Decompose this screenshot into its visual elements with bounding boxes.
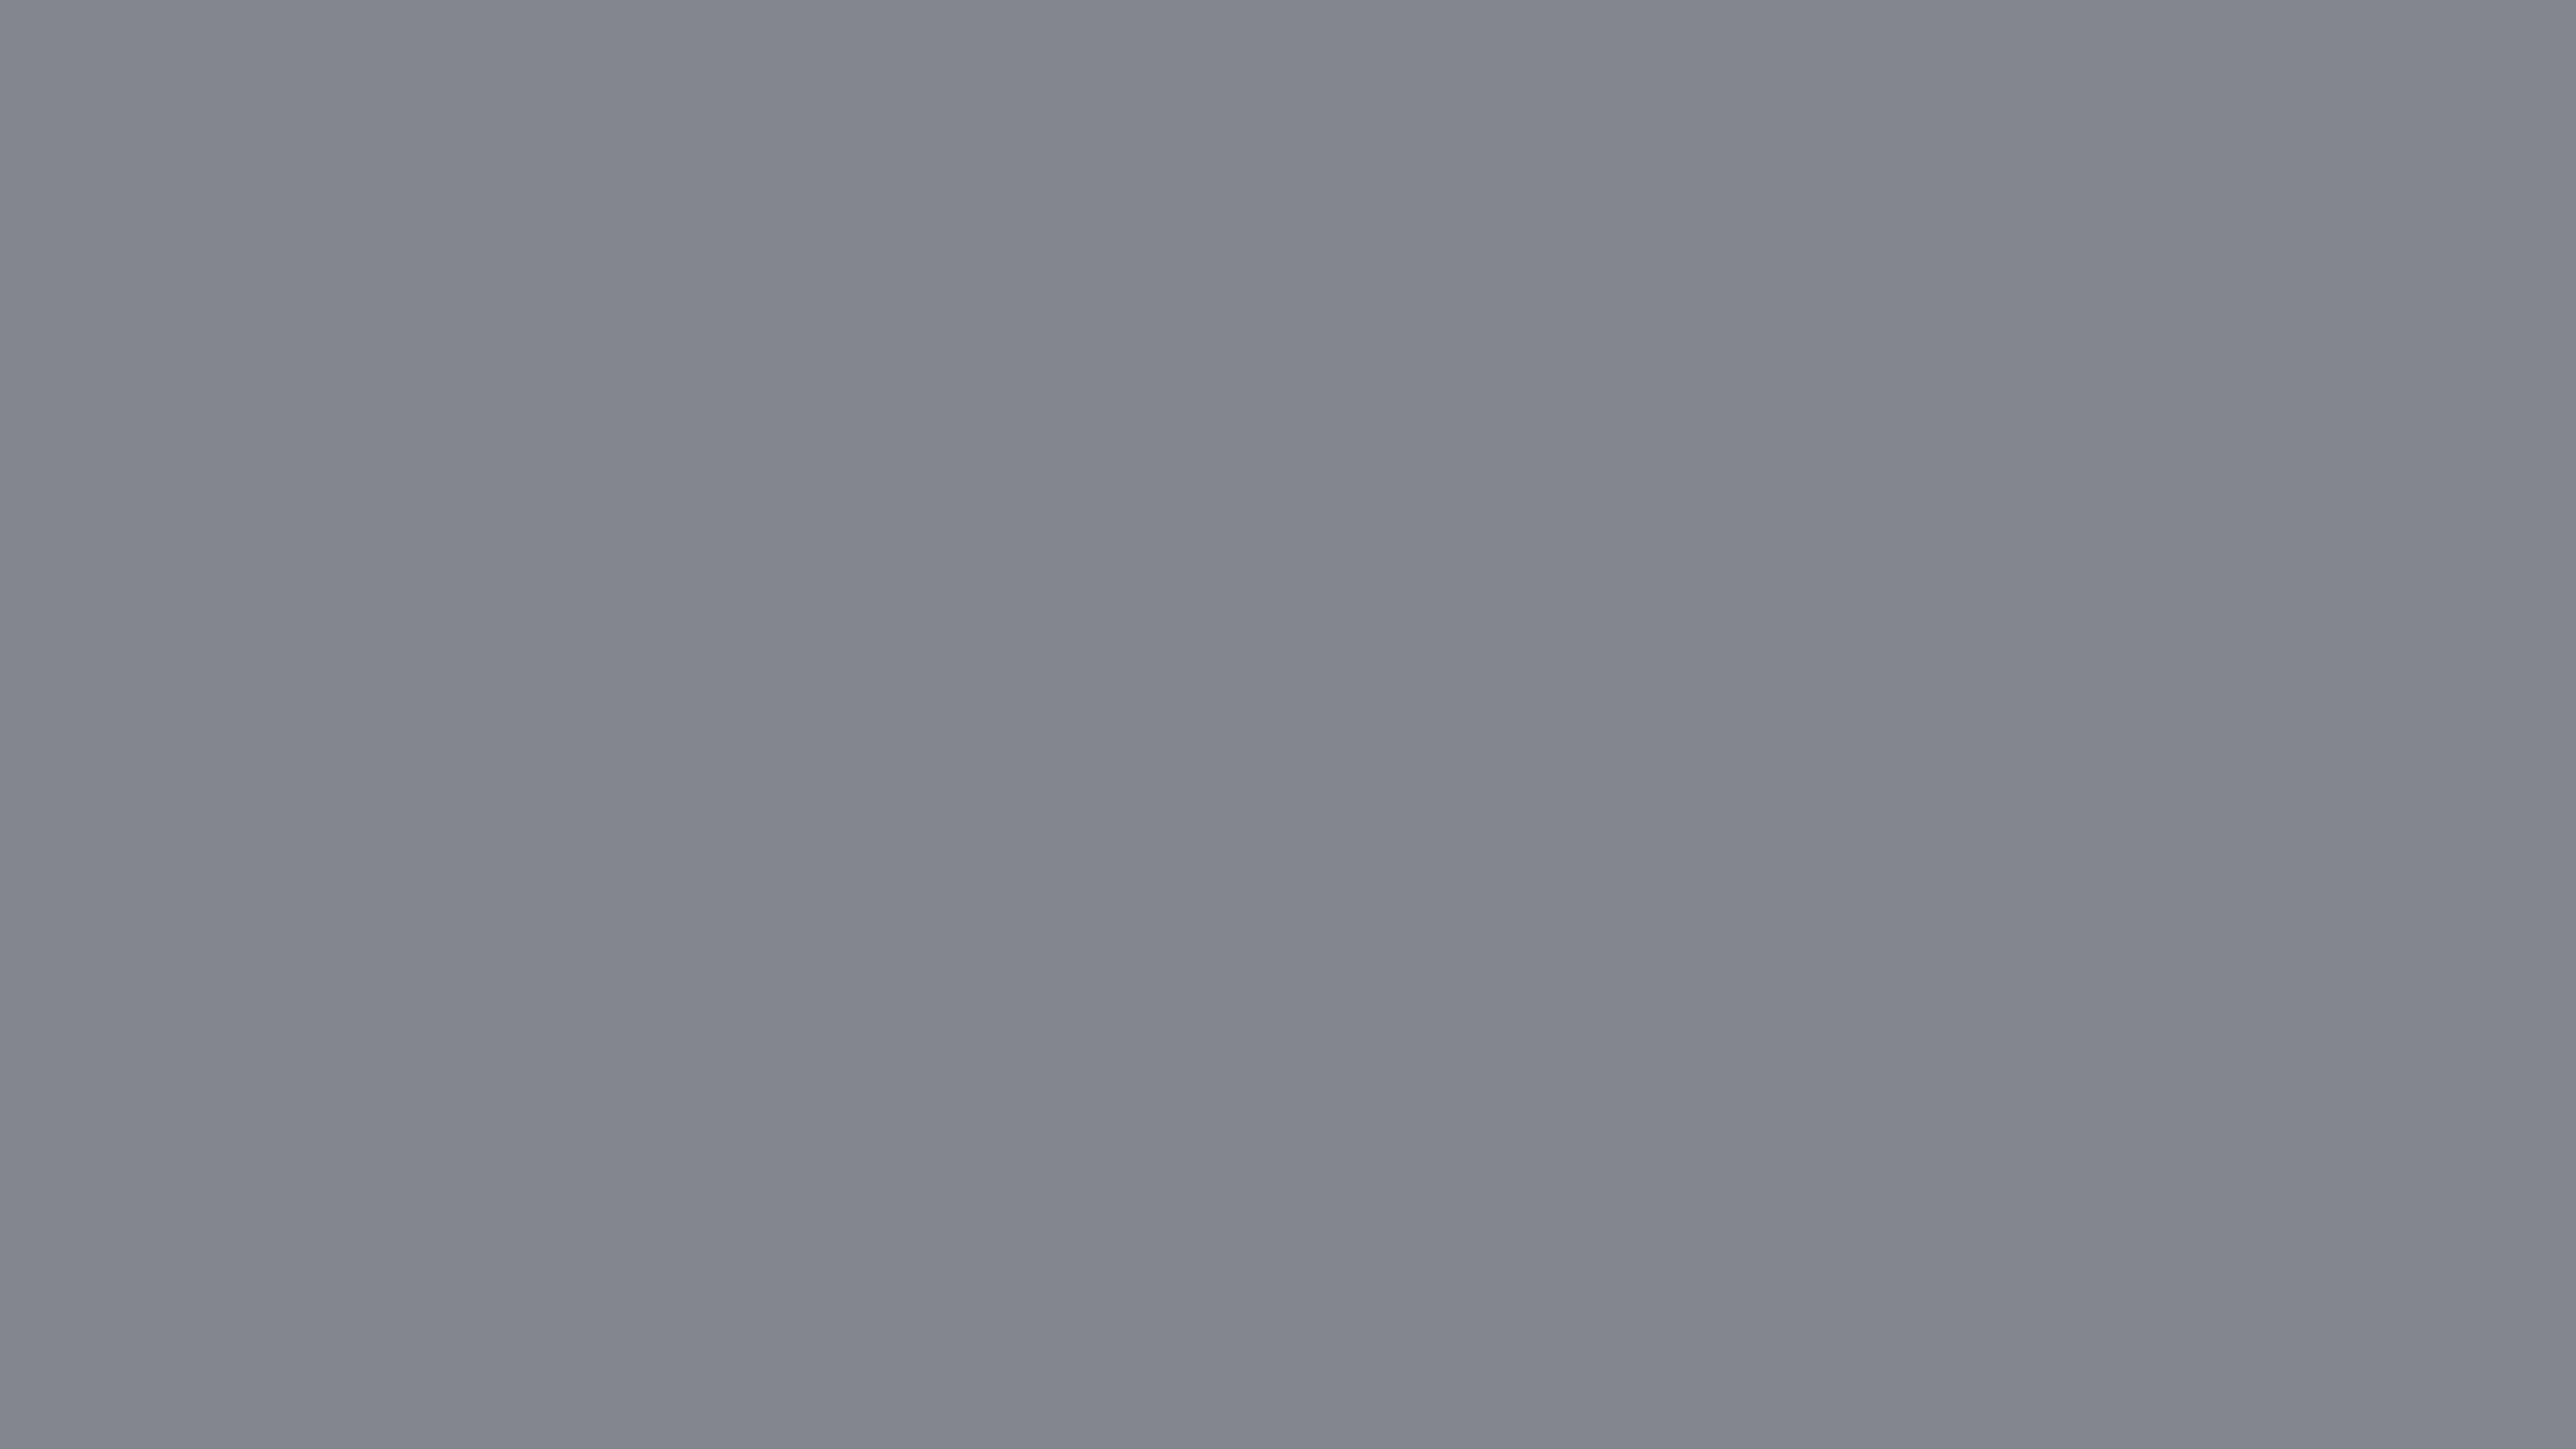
isometric-floorplan-render: 3D isometric floor plan of a one-bedroom…	[0, 0, 2576, 1449]
render-stage: 3D isometric floor plan of a one-bedroom…	[0, 0, 2576, 1449]
